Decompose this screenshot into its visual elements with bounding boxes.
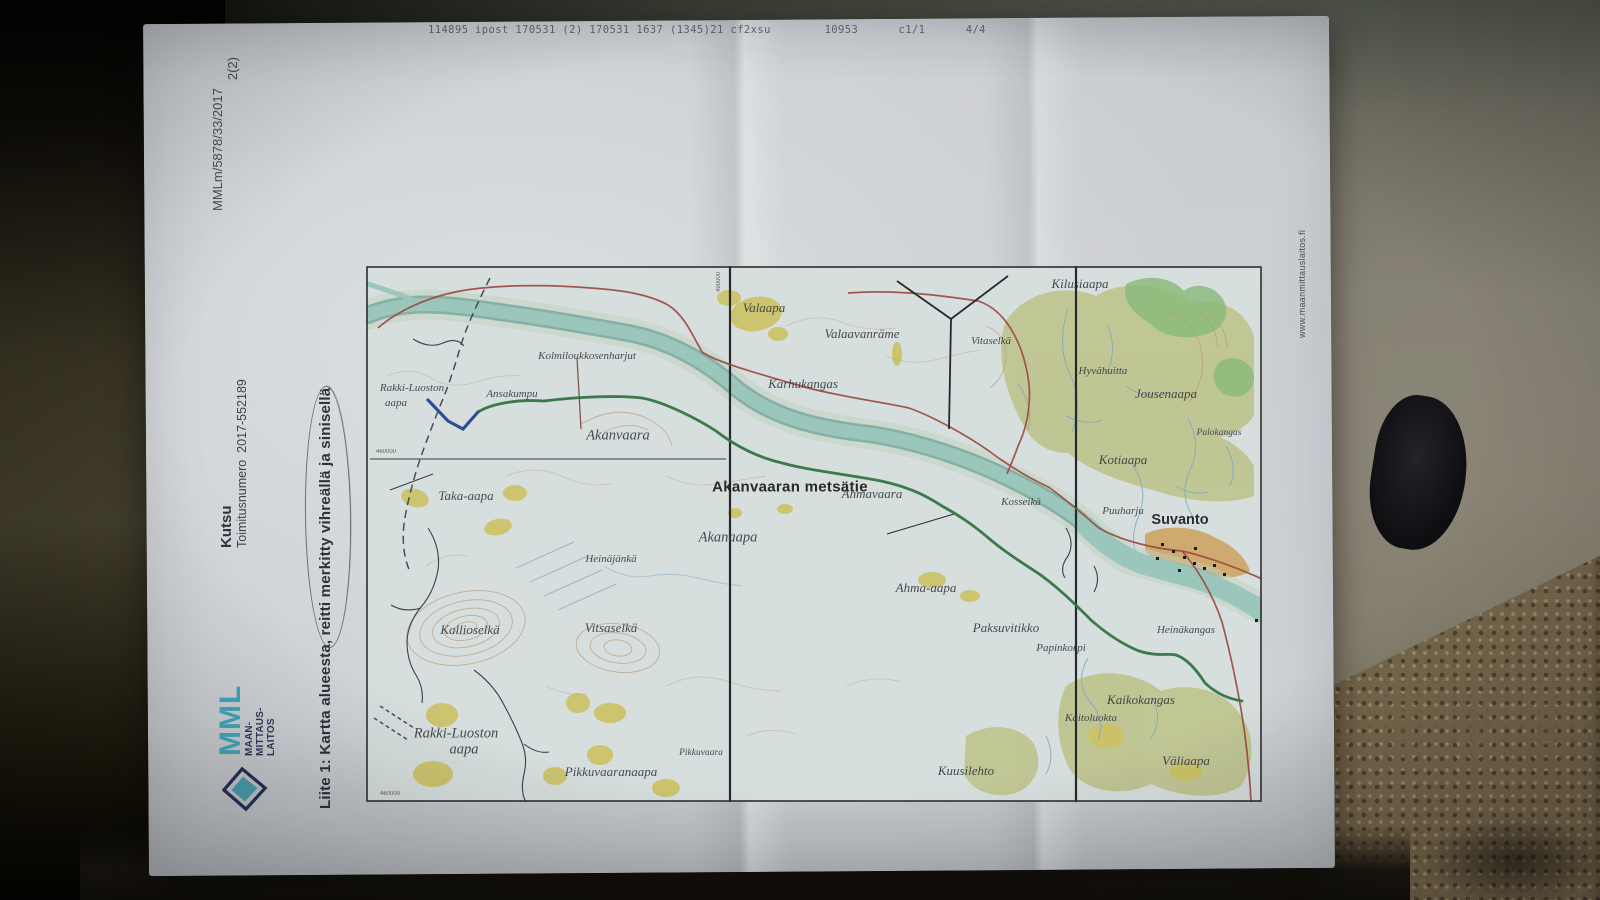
map-label-kuusilehto: Kuusilehto <box>938 763 994 779</box>
map-label-hein-kangas: Heinäkangas <box>1157 624 1215 636</box>
website-url: www.maanmittauslaitos.fi <box>1297 188 1309 338</box>
map-label-suvanto: Suvanto <box>1151 512 1208 528</box>
paper-photo-area: 114895 ipost 170531 (2) 170531 1637 (134… <box>0 0 1600 900</box>
map-label-papinkorpi: Papinkorpi <box>1036 642 1086 654</box>
map-label-460000: 460000 <box>376 449 396 455</box>
map-label-pikkuvaaranaapa: Pikkuvaaranaapa <box>565 764 657 780</box>
map-label-hein-j-nk-: Heinäjänkä <box>585 553 636 565</box>
mml-diamond-icon <box>222 766 273 812</box>
map-label-v-liaapa: Väliaapa <box>1162 753 1210 769</box>
map-label-taka-aapa: Taka-aapa <box>438 488 493 504</box>
map-label-hyv-huitta: Hyvähuitta <box>1079 365 1128 377</box>
map-label-490000: 490000 <box>716 272 722 292</box>
map-label-valaavanr-me: Valaavanräme <box>824 326 899 342</box>
map-label-vitsaselk-: Vitsaselkä <box>585 620 637 636</box>
mml-abbr: MML <box>217 685 244 756</box>
map-label-valaapa: Valaapa <box>743 300 786 316</box>
map-label-aapa: aapa <box>450 742 479 759</box>
map-label-kaikokangas: Kaikokangas <box>1107 692 1175 708</box>
map-label-kolmiloukkosenharjut: Kolmiloukkosenharjut <box>538 350 636 362</box>
map-label-layer: ValaapaValaavanrämeVitaselkäKilusiaapaHy… <box>366 266 1262 802</box>
mml-logo-text: MML MAAN- MITTAUS- LAITOS <box>217 685 278 756</box>
map-label-jousenaapa: Jousenaapa <box>1135 386 1197 402</box>
document-page-indicator: 2(2) <box>225 51 240 211</box>
document-type-block: Kutsu Toimitusnumero 2017-552189 <box>218 298 256 548</box>
map-label-pikkuvaara: Pikkuvaara <box>679 748 723 758</box>
map-label-akanaapa: Akanaapa <box>699 530 758 547</box>
map-label-kosseik-: Kosseikä <box>1001 496 1041 508</box>
map-label-akanvaara: Akanvaara <box>586 428 650 445</box>
topographic-map: ValaapaValaavanrämeVitaselkäKilusiaapaHy… <box>366 266 1262 802</box>
document-type-label: Kutsu <box>218 298 235 548</box>
map-label-ansakumpu: Ansakumpu <box>486 388 537 400</box>
map-label-rakki-luoston: Rakki-Luoston <box>414 726 499 743</box>
map-label-ahmavaara: Ahmavaara <box>842 486 903 502</box>
map-label-kotiaapa: Kotiaapa <box>1099 452 1147 468</box>
map-label-puuharju: Puuharju <box>1102 505 1144 517</box>
map-label-vitaselk-: Vitaselkä <box>971 335 1011 347</box>
map-label-karhukangas: Karhukangas <box>768 376 838 392</box>
printer-header-line: 114895 ipost 170531 (2) 170531 1637 (134… <box>428 24 986 36</box>
map-label-aapa: aapa <box>385 397 407 409</box>
photo-of-map-document: 114895 ipost 170531 (2) 170531 1637 (134… <box>0 0 1600 900</box>
mml-logo: MML MAAN- MITTAUS- LAITOS <box>192 662 302 812</box>
map-label-rakki-luoston: Rakki-Luoston <box>380 382 444 394</box>
delivery-number: Toimitusnumero 2017-552189 <box>235 298 249 548</box>
map-label-kallioselk-: Kallioselkä <box>440 622 499 638</box>
map-label-palokangas: Palokangas <box>1197 428 1242 438</box>
map-label-kilusiaapa: Kilusiaapa <box>1051 276 1108 292</box>
mml-org-line-3: LAITOS <box>266 685 277 756</box>
map-label-kaitoluokta: Kaitoluokta <box>1065 712 1117 724</box>
mml-org-line-2: MITTAUS- <box>255 685 266 756</box>
map-label-460000: 460000 <box>380 791 400 797</box>
map-label-paksuvitikko: Paksuvitikko <box>973 620 1039 636</box>
map-label-ahma-aapa: Ahma-aapa <box>896 580 957 596</box>
document-reference: MMLm/5878/33/2017 2(2) <box>210 51 246 211</box>
document-reference-number: MMLm/5878/33/2017 <box>210 51 225 211</box>
